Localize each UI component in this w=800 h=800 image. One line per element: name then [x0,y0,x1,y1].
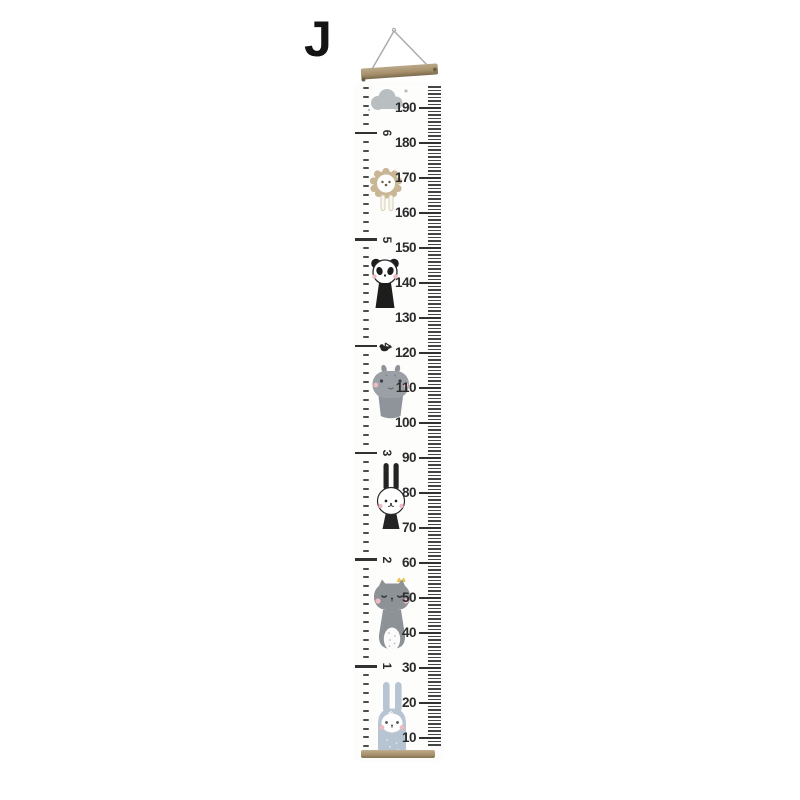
cm-tick [428,233,441,235]
cm-tick [428,359,441,361]
inch-tick [363,230,369,232]
inch-tick [363,470,369,472]
cm-tick [428,555,441,557]
cm-tick [428,198,441,200]
cm-tick [428,520,441,522]
cm-tick [428,405,441,407]
cm-tick [428,226,441,228]
inch-tick [363,221,369,223]
cm-tick [428,573,441,575]
cm-tick [428,167,441,169]
inch-tick [363,292,369,294]
cm-major-tick [419,212,441,214]
cm-tick [428,433,441,435]
cm-tick [428,104,441,106]
cm-tick [428,524,441,526]
cm-tick [428,97,441,99]
cm-tick [428,356,441,358]
inch-tick [363,736,369,738]
inch-tick [363,319,369,321]
inch-tick [363,496,369,498]
cm-tick [428,475,441,477]
cm-tick [428,261,441,263]
inch-tick [363,150,369,152]
inch-tick [363,443,369,445]
inch-tick [363,399,369,401]
cm-tick [428,219,441,221]
foot-label: 6 [381,126,393,140]
cm-tick [428,541,441,543]
cm-tick [428,135,441,137]
cm-tick [428,240,441,242]
cm-label: 130 [395,310,416,325]
inch-tick [363,301,369,303]
cm-tick [428,622,441,624]
inch-tick [363,203,369,205]
cm-tick [428,548,441,550]
cm-tick [428,590,441,592]
cm-tick [428,660,441,662]
cm-tick [428,503,441,505]
cm-tick [428,506,441,508]
inch-tick [363,283,369,285]
inch-tick [363,461,369,463]
inch-tick [363,488,369,490]
cm-major-tick [419,107,441,109]
inch-tick [363,265,369,267]
inch-tick [363,123,369,125]
cm-tick [428,625,441,627]
cm-tick [428,699,441,701]
inch-tick [363,274,369,276]
foot-tick [355,345,377,347]
cm-tick [428,464,441,466]
cm-tick [428,569,441,571]
cm-label: 40 [402,625,416,640]
cm-tick [428,191,441,193]
cm-label: 90 [402,450,416,465]
cm-tick [428,566,441,568]
inch-tick [363,176,369,178]
cm-tick [428,90,441,92]
inch-tick [363,479,369,481]
inch-tick [363,372,369,374]
cm-tick [428,121,441,123]
cm-tick [428,664,441,666]
cm-major-tick [419,737,441,739]
inch-tick [363,585,369,587]
ruler-strip: 1901801701601501401301201101009080706050… [357,84,441,760]
inch-tick [363,594,369,596]
cm-major-tick [419,422,441,424]
cm-tick [428,408,441,410]
cm-tick [428,482,441,484]
cm-tick [428,160,441,162]
cm-major-tick [419,142,441,144]
cm-tick [428,377,441,379]
cm-tick [428,580,441,582]
cm-tick [428,454,441,456]
inch-tick [363,167,369,169]
inch-tick [363,656,369,658]
cm-tick [428,499,441,501]
cm-tick [428,258,441,260]
cm-major-tick [419,282,441,284]
inch-tick [363,354,369,356]
cm-tick [428,223,441,225]
cm-label: 110 [396,380,416,395]
cm-tick [428,296,441,298]
cm-tick [428,471,441,473]
foot-label: 5 [381,233,393,247]
foot-tick [355,665,377,667]
cm-tick [428,125,441,127]
cm-tick [428,639,441,641]
cm-tick [428,517,441,519]
inch-tick [363,363,369,365]
inch-tick [363,719,369,721]
cm-tick [428,345,441,347]
cm-tick [428,559,441,561]
inch-tick [363,434,369,436]
inch-tick [363,141,369,143]
cm-tick [428,429,441,431]
inch-tick [363,745,369,747]
cm-tick [428,447,441,449]
inch-tick [363,310,369,312]
cm-label: 30 [402,660,416,675]
cm-tick [428,373,441,375]
cm-label: 120 [395,345,416,360]
cm-tick [428,128,441,130]
cm-tick [428,384,441,386]
cm-label: 10 [402,730,416,745]
nail-icon [361,77,365,81]
inch-tick [363,425,369,427]
cm-tick [428,324,441,326]
cm-tick [428,279,441,281]
cm-tick [428,709,441,711]
cm-tick [428,727,441,729]
cm-tick [428,111,441,113]
cm-tick [428,629,441,631]
cm-tick [428,720,441,722]
cm-tick [428,307,441,309]
cm-tick [428,685,441,687]
cm-tick [428,275,441,277]
cm-label: 190 [395,100,416,115]
inch-tick [363,550,369,552]
cm-tick [428,216,441,218]
cm-tick [428,674,441,676]
inch-tick [363,390,369,392]
cm-tick [428,692,441,694]
cm-major-tick [419,387,441,389]
cm-label: 180 [395,135,416,150]
cm-tick [428,244,441,246]
cm-tick [428,195,441,197]
cm-tick [428,583,441,585]
cm-tick [428,370,441,372]
cm-tick [428,293,441,295]
cm-tick [428,230,441,232]
cm-tick [428,478,441,480]
cm-tick [428,601,441,603]
cm-tick [428,436,441,438]
cm-tick [428,636,441,638]
cm-tick [428,303,441,305]
cm-tick [428,440,441,442]
cm-tick [428,538,441,540]
cm-tick [428,716,441,718]
foot-tick [355,132,377,134]
cm-tick [428,132,441,134]
cm-label: 170 [395,170,416,185]
cm-tick [428,513,441,515]
cm-tick [428,289,441,291]
inch-tick [363,247,369,249]
cm-tick [428,713,441,715]
foot-tick [355,238,377,240]
cm-tick [428,265,441,267]
inch-tick [363,505,369,507]
cm-tick [428,734,441,736]
cm-tick [428,461,441,463]
cm-tick [428,646,441,648]
inch-tick [363,692,369,694]
cm-tick [428,415,441,417]
cm-label: 20 [402,695,416,710]
cm-tick [428,741,441,743]
cm-major-tick [419,317,441,319]
cm-tick [428,650,441,652]
cm-tick [428,611,441,613]
cm-tick [428,153,441,155]
cm-tick [428,146,441,148]
cm-label: 60 [402,555,416,570]
cm-tick [428,156,441,158]
nail-icon [433,67,437,71]
inch-tick [363,114,369,116]
inch-tick [363,621,369,623]
cm-major-tick [419,177,441,179]
cm-tick [428,331,441,333]
cm-tick [428,163,441,165]
cm-tick [428,363,441,365]
cm-tick [428,678,441,680]
cm-label: 50 [402,590,416,605]
cm-tick [428,237,441,239]
variant-label: J [304,14,332,64]
cm-tick [428,170,441,172]
cm-tick [428,468,441,470]
cm-tick [428,300,441,302]
inch-tick [363,541,369,543]
cm-tick [428,286,441,288]
cm-major-tick [419,352,441,354]
inch-tick [363,674,369,676]
cm-tick [428,496,441,498]
cm-major-tick [419,527,441,529]
foot-label: 3 [381,446,393,460]
cm-label: 70 [402,520,416,535]
foot-tick [355,452,377,454]
cm-tick [428,86,441,88]
cm-major-tick [419,562,441,564]
wooden-bottom-bar [361,750,435,758]
cm-tick [428,688,441,690]
cm-label: 140 [395,275,416,290]
cm-tick [428,671,441,673]
cm-tick [428,188,441,190]
cm-tick [428,118,441,120]
inch-tick [363,532,369,534]
cm-tick [428,338,441,340]
inch-tick [363,612,369,614]
cm-tick [428,391,441,393]
inch-tick [363,416,369,418]
foot-label: 2 [381,553,393,567]
cm-tick [428,643,441,645]
cm-tick [428,510,441,512]
inch-tick [363,105,369,107]
cm-tick [428,587,441,589]
inch-tick [363,683,369,685]
cm-tick [428,534,441,536]
cm-label: 80 [402,485,416,500]
cm-tick [428,149,441,151]
cm-tick [428,443,441,445]
foot-tick [355,558,377,560]
cm-tick [428,545,441,547]
cm-tick [428,426,441,428]
cm-major-tick [419,702,441,704]
cm-tick [428,184,441,186]
cm-tick [428,681,441,683]
cm-tick [428,93,441,95]
inch-tick [363,185,369,187]
inch-tick [363,630,369,632]
inch-tick [363,701,369,703]
cm-tick [428,744,441,746]
cm-tick [428,209,441,211]
inch-tick [363,648,369,650]
inch-tick [363,328,369,330]
inch-tick [363,381,369,383]
inch-tick [363,639,369,641]
cm-tick [428,706,441,708]
inch-tick [363,159,369,161]
inch-tick [363,408,369,410]
cm-tick [428,576,441,578]
inch-tick [363,576,369,578]
inch-tick [363,728,369,730]
cm-tick [428,531,441,533]
foot-label: 1 [381,659,393,673]
cm-tick [428,328,441,330]
cm-tick [428,380,441,382]
cm-tick [428,401,441,403]
cm-tick [428,342,441,344]
cm-tick [428,100,441,102]
cm-tick [428,419,441,421]
cm-tick [428,450,441,452]
cm-tick [428,114,441,116]
inch-tick [363,212,369,214]
cm-tick [428,604,441,606]
cm-major-tick [419,597,441,599]
cm-tick [428,618,441,620]
cm-tick [428,268,441,270]
cm-tick [428,594,441,596]
cm-major-tick [419,632,441,634]
cm-tick [428,335,441,337]
cm-tick [428,366,441,368]
inch-tick [363,603,369,605]
inch-tick [363,523,369,525]
cm-tick [428,653,441,655]
cm-tick [428,181,441,183]
cm-tick [428,314,441,316]
cm-tick [428,608,441,610]
cm-tick [428,174,441,176]
cm-tick [428,412,441,414]
cm-label: 100 [395,415,416,430]
inch-tick [363,568,369,570]
cm-tick [428,254,441,256]
cm-major-tick [419,457,441,459]
cm-label: 150 [395,240,416,255]
cm-tick [428,205,441,207]
cm-tick [428,730,441,732]
cm-tick [428,398,441,400]
inch-tick [363,514,369,516]
cm-tick [428,615,441,617]
inch-tick [363,710,369,712]
cm-tick [428,489,441,491]
cm-label: 160 [395,205,416,220]
cm-tick [428,272,441,274]
cm-tick [428,251,441,253]
foot-label: 4 [381,339,393,353]
product-photo: J [0,0,800,800]
inch-tick [363,336,369,338]
cm-tick [428,695,441,697]
cm-major-tick [419,247,441,249]
cm-tick [428,723,441,725]
cm-tick [428,657,441,659]
cm-tick [428,349,441,351]
cm-tick [428,552,441,554]
cm-tick [428,310,441,312]
inch-tick [363,194,369,196]
cm-tick [428,202,441,204]
cm-major-tick [419,667,441,669]
cm-major-tick [419,492,441,494]
cm-tick [428,485,441,487]
cm-tick [428,394,441,396]
cm-tick [428,139,441,141]
cm-tick [428,321,441,323]
